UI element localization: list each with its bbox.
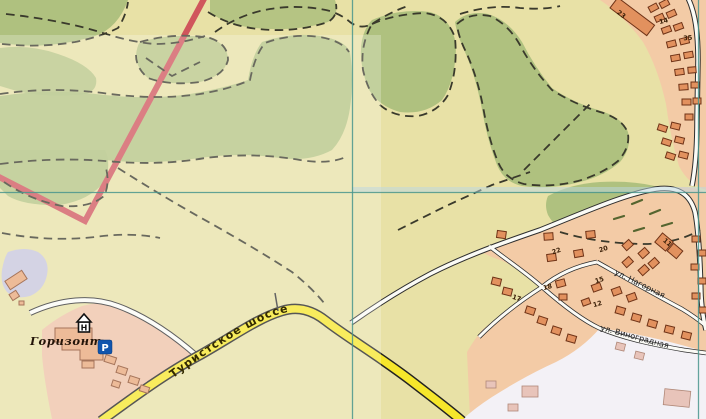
map-screenshot[interactable]: Горизонт Туристское шоссе ул. Нагорная у… xyxy=(0,0,706,419)
svg-text:H: H xyxy=(81,324,88,333)
parking-icon: P xyxy=(98,340,112,354)
svg-text:35: 35 xyxy=(683,34,693,43)
svg-text:P: P xyxy=(101,343,108,354)
resort-label: Горизонт xyxy=(29,334,102,348)
map-canvas[interactable]: Горизонт Туристское шоссе ул. Нагорная у… xyxy=(0,0,706,419)
